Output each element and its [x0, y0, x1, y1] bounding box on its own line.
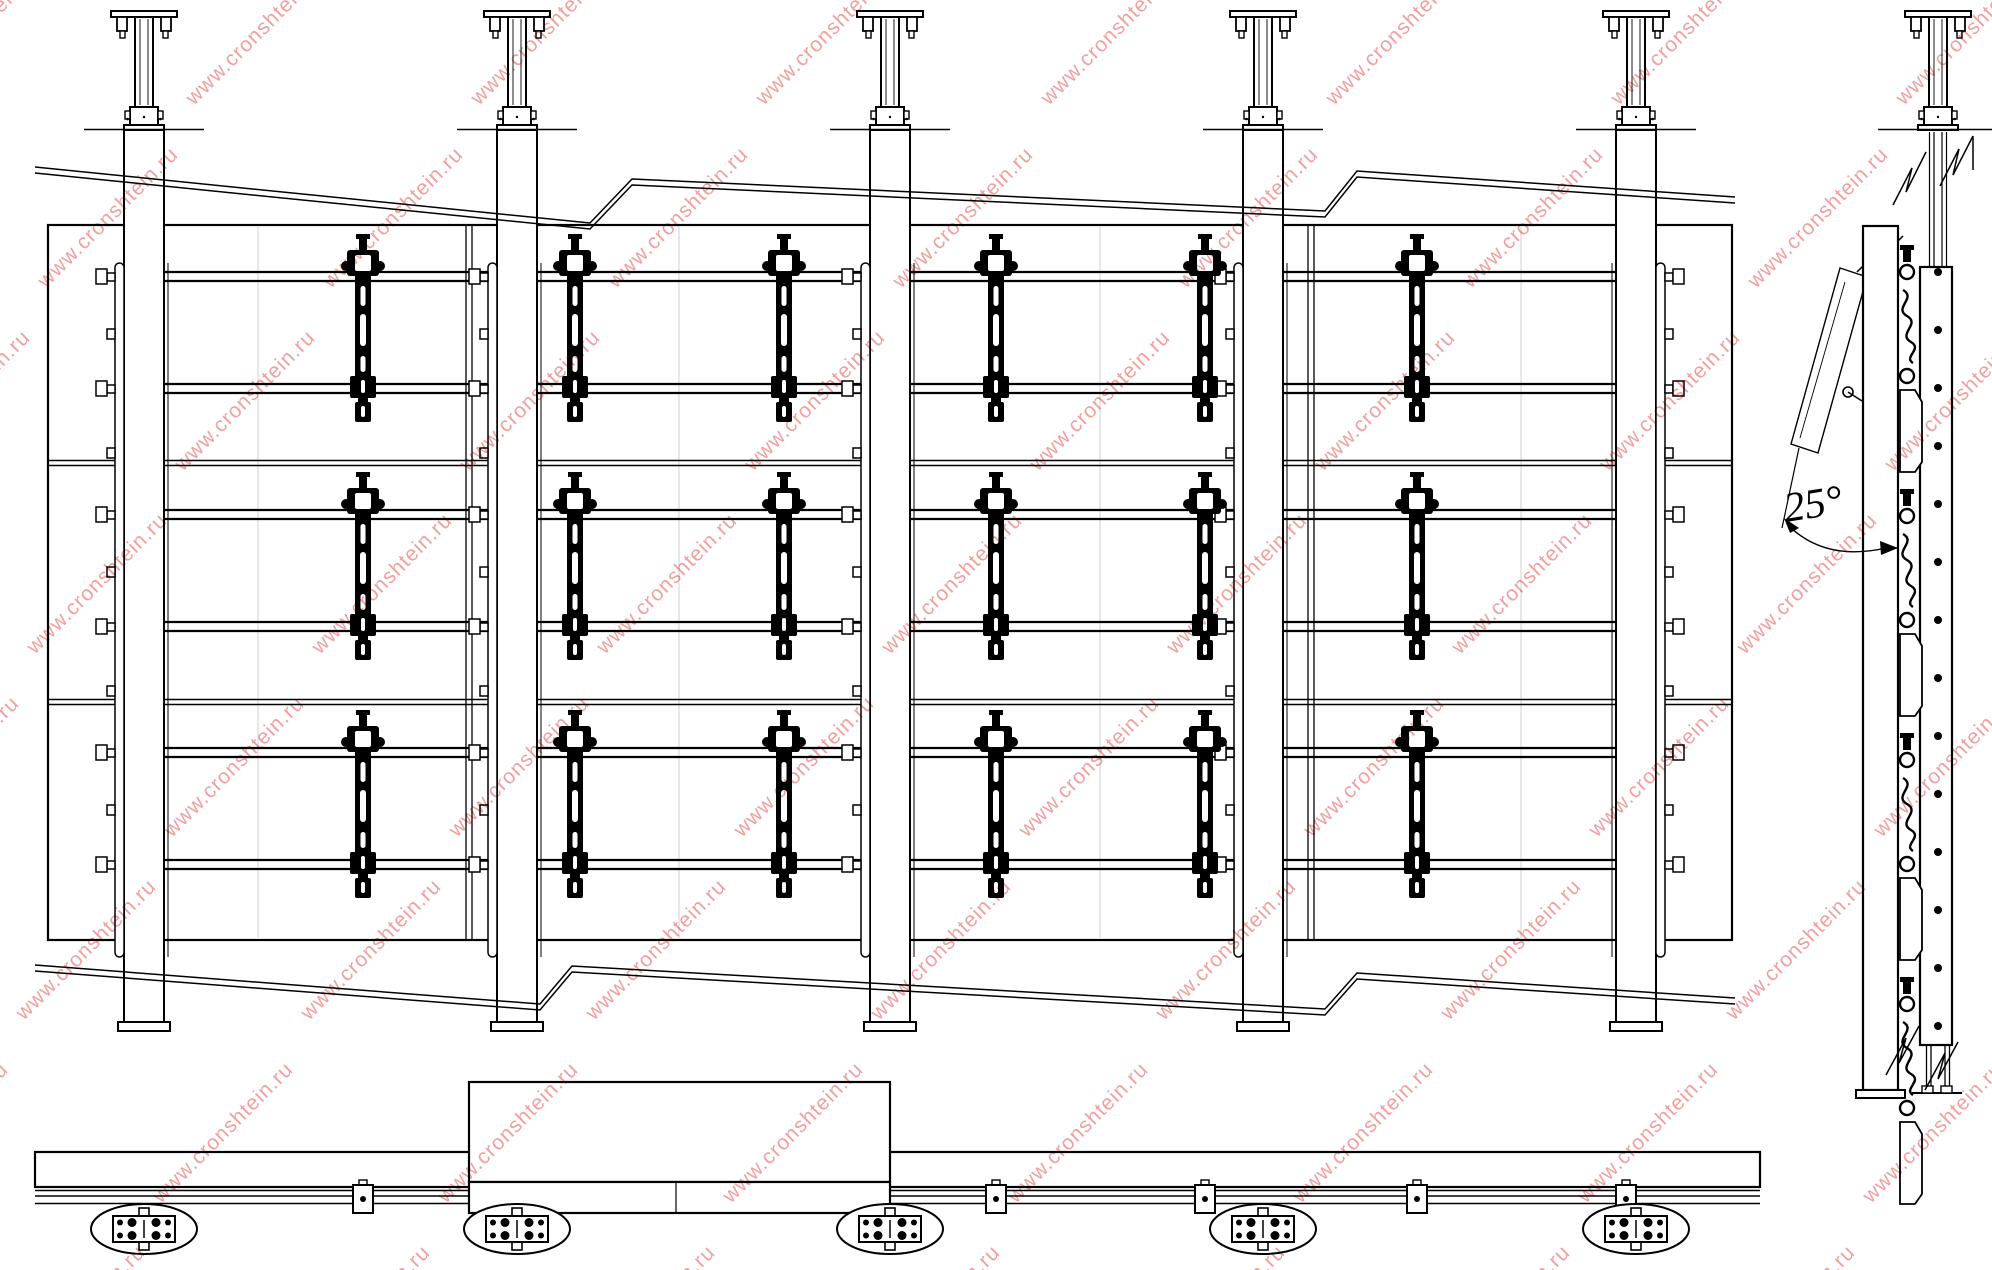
ceiling-plate-hook [161, 17, 171, 31]
collar-bolt-dot [1278, 118, 1281, 121]
stub-bolt-head [842, 269, 853, 284]
slot [573, 594, 578, 610]
hook-ring [1900, 369, 1914, 383]
stub-bolt-head [1673, 745, 1684, 760]
stub-bolt-small [853, 329, 861, 339]
slot [573, 406, 577, 417]
support-column [870, 129, 910, 1022]
bracket-bolt-cap [568, 234, 582, 239]
ceiling-pole-assembly [1203, 11, 1323, 130]
stub-bolt-small [480, 805, 488, 815]
pole-tube [508, 17, 526, 107]
slot [1203, 644, 1207, 655]
stub-bolt-shaft [853, 749, 861, 757]
hook-ring [1900, 753, 1914, 767]
cad-page: 25° www.cronshtein.ruwww.cronshtein.ruww… [0, 0, 1992, 1270]
bolt-hole-small [863, 1233, 869, 1239]
bolt-hole [1620, 1218, 1629, 1227]
slot [782, 524, 787, 544]
collar-bolt-dot [159, 118, 162, 121]
stub-bolt-small [107, 567, 115, 577]
hook-spring-clip [1902, 778, 1915, 851]
bracket-bolt-stem [992, 477, 1000, 489]
stub-bolt-shaft [1226, 749, 1234, 757]
stub-bolt-small [107, 686, 115, 696]
stub-bolt-shaft [107, 623, 115, 631]
hook-bolt-stem [1903, 982, 1911, 994]
ceiling-plate-hook-tip [866, 31, 871, 38]
bracket-bolt-cap [1410, 472, 1424, 477]
ceiling-plate-hook [534, 17, 544, 31]
plate-tab [1258, 1208, 1268, 1216]
side-foot [1922, 1086, 1933, 1093]
bolt-hole [128, 1231, 137, 1240]
side-hook-unit [1900, 245, 1922, 472]
clamp-bolt-dot [1623, 1196, 1629, 1202]
collar-bolt-dot [126, 118, 129, 121]
bracket-bolt-stem [1413, 715, 1421, 727]
slot [1415, 380, 1419, 393]
ceiling-base-plate [91, 1204, 197, 1254]
ceiling-plate-hook-tip [163, 31, 168, 38]
stub-bolt-shaft [1226, 511, 1234, 519]
bolt-hole [1644, 1218, 1653, 1227]
stub-bolt-shaft [1226, 273, 1234, 281]
plate-tab [1258, 1242, 1268, 1250]
panel-hole-dot [1934, 674, 1942, 682]
stub-bolt-head [842, 507, 853, 522]
hook-ring [1900, 613, 1914, 627]
collar-bolt-dot [1618, 118, 1621, 121]
panel-hole-dot [1934, 732, 1942, 740]
bolt-hole-small [538, 1233, 544, 1239]
slot [361, 380, 365, 393]
stub-bolt-small [480, 567, 488, 577]
front-view [35, 11, 1735, 1031]
slot [776, 493, 792, 509]
stub-bolt-head [96, 269, 107, 284]
hook-ring [1900, 509, 1914, 523]
slot [1415, 762, 1420, 782]
collar-bolt-dot [1920, 118, 1923, 121]
stub-bolt-small [1665, 567, 1673, 577]
stub-bolt-small [1226, 329, 1234, 339]
collar-bolt-dot [1953, 118, 1956, 121]
stub-bolt-shaft [1665, 385, 1673, 393]
bolt-hole [874, 1218, 883, 1227]
bolt-hole-small [1236, 1220, 1242, 1226]
slot [994, 856, 998, 869]
bracket-bolt-cap [1410, 710, 1424, 715]
hook-plate [1900, 390, 1922, 472]
clamp-bolt-dot [360, 1196, 366, 1202]
bolt-hole [128, 1218, 137, 1227]
slot [1415, 832, 1420, 848]
ceiling-plate-hook-tip [1957, 31, 1962, 38]
slot [572, 552, 578, 584]
bolt-hole [898, 1218, 907, 1227]
ceiling-plate-hook-tip [1282, 31, 1287, 38]
slot [573, 524, 578, 544]
vertical-strip [1234, 263, 1243, 957]
clamp-bolt-dot [1202, 1196, 1208, 1202]
slot [573, 882, 577, 893]
pole-tube [1929, 17, 1947, 107]
plate-tab [885, 1242, 895, 1250]
hook-spring-clip [1902, 534, 1915, 607]
bolt-hole-small [1657, 1220, 1663, 1226]
slot [361, 356, 366, 372]
stub-bolt-small [1665, 448, 1673, 458]
bolt-hole [1620, 1231, 1629, 1240]
panel-hole-dot [1934, 326, 1942, 334]
ceiling-plate-hook [1653, 17, 1663, 31]
break-symbol [1925, 1042, 1958, 1090]
slot [1409, 731, 1425, 747]
stub-bolt-shaft [853, 273, 861, 281]
stub-bolt-head [842, 619, 853, 634]
vertical-strip [488, 263, 497, 957]
stub-bolt-shaft [1665, 861, 1673, 869]
slot [567, 493, 583, 509]
clamp-bolt-dot [993, 1196, 999, 1202]
bolt-hole [1271, 1231, 1280, 1240]
hook-plate [1900, 634, 1922, 716]
slot [1197, 731, 1213, 747]
slot [782, 406, 786, 417]
slot [782, 644, 786, 655]
bolt-hole-small [911, 1220, 917, 1226]
hook-bolt-cap [1900, 489, 1914, 494]
slot [994, 594, 999, 610]
hook-spring-clip [1902, 290, 1915, 363]
panel-hole-dot [1934, 1022, 1942, 1030]
side-column [1863, 226, 1898, 1090]
slot [994, 524, 999, 544]
collar-bolt-dot [532, 118, 535, 121]
stub-bolt-small [480, 329, 488, 339]
hook-ring [1900, 1101, 1914, 1115]
stub-bolt-shaft [853, 623, 861, 631]
slot [573, 832, 578, 848]
bracket-bolt-stem [1201, 239, 1209, 251]
plate-tab [512, 1242, 522, 1250]
bolt-hole-small [911, 1233, 917, 1239]
plate-tab [512, 1208, 522, 1216]
ceiling-plate-hook [907, 17, 917, 31]
hook-bolt-stem [1903, 250, 1911, 262]
clamp-bolt-dot [1414, 1196, 1420, 1202]
side-display-panel [1920, 267, 1952, 1045]
stub-bolt-shaft [853, 511, 861, 519]
slot [361, 286, 366, 306]
slot [361, 594, 366, 610]
stub-bolt-head [469, 857, 480, 872]
bracket-bolt-cap [777, 472, 791, 477]
ceiling-plate-hook [1609, 17, 1619, 31]
slot [1415, 644, 1419, 655]
stub-bolt-shaft [1665, 511, 1673, 519]
slot [994, 644, 998, 655]
stub-bolt-shaft [107, 749, 115, 757]
column-foot [864, 1022, 916, 1031]
plate-tab [1631, 1208, 1641, 1216]
ceiling-plate-hook-tip [909, 31, 914, 38]
bolt-hole [1644, 1231, 1653, 1240]
pole-dot [516, 116, 518, 118]
stub-bolt-head [96, 507, 107, 522]
bolt-hole-small [1609, 1233, 1615, 1239]
stub-bolt-head [469, 381, 480, 396]
stub-bolt-small [853, 448, 861, 458]
bolt-hole [152, 1218, 161, 1227]
slot [1414, 790, 1420, 822]
stub-bolt-shaft [480, 385, 488, 393]
bolt-hole [1247, 1231, 1256, 1240]
vertical-strip [1656, 263, 1665, 957]
stub-bolt-head [96, 745, 107, 760]
panel-hole-dot [1934, 268, 1942, 276]
bolt-hole-small [1609, 1220, 1615, 1226]
assembly-drawing: 25° [0, 0, 1992, 1270]
slot [1203, 286, 1208, 306]
slot [361, 644, 365, 655]
hook-ring [1900, 857, 1914, 871]
slot [572, 314, 578, 346]
bolt-hole [501, 1231, 510, 1240]
stub-bolt-small [1665, 329, 1673, 339]
ceiling-base-plate [1210, 1204, 1316, 1254]
stub-bolt-shaft [1226, 623, 1234, 631]
ceiling-base-plate [837, 1204, 943, 1254]
stub-bolt-small [107, 805, 115, 815]
panel-hole-dot [1934, 790, 1942, 798]
ceiling-plate-hook [1911, 17, 1921, 31]
slot [994, 618, 998, 631]
bracket-bolt-cap [989, 472, 1003, 477]
ceiling-plate-hook [1280, 17, 1290, 31]
hook-ring [1900, 265, 1914, 279]
collar-bolt-dot [499, 118, 502, 121]
bolt-hole [874, 1231, 883, 1240]
slot [1203, 594, 1208, 610]
bracket-bolt-cap [356, 472, 370, 477]
slot [1415, 856, 1419, 869]
slot [782, 380, 786, 393]
slot [572, 790, 578, 822]
stub-bolt-head [469, 269, 480, 284]
slot [988, 731, 1004, 747]
pole-tube [881, 17, 899, 107]
stub-bolt-head [96, 619, 107, 634]
stub-bolt-small [1226, 805, 1234, 815]
ceiling-plate-hook-tip [1612, 31, 1617, 38]
stub-bolt-shaft [480, 273, 488, 281]
stub-bolt-small [1226, 686, 1234, 696]
bracket-bolt-stem [359, 239, 367, 251]
stub-bolt-head [842, 745, 853, 760]
hook-ring [1900, 997, 1914, 1011]
slot [1203, 406, 1207, 417]
bracket-bolt-stem [992, 239, 1000, 251]
pole-tube [1627, 17, 1645, 107]
stub-bolt-shaft [480, 623, 488, 631]
stub-bolt-small [1665, 805, 1673, 815]
ceiling-base-plate [1583, 1204, 1689, 1254]
ceiling-pole-assembly [1576, 11, 1696, 130]
column-foot [118, 1022, 170, 1031]
bracket-bolt-cap [568, 472, 582, 477]
plan-display-rect [469, 1082, 890, 1182]
bracket-bolt-cap [568, 710, 582, 715]
bolt-hole [898, 1231, 907, 1240]
plate-tab [885, 1208, 895, 1216]
plan-rail-clamp [1407, 1180, 1427, 1213]
slot [567, 731, 583, 747]
slot [573, 380, 577, 393]
slot [1202, 552, 1208, 584]
tilt-angle-label: 25° [1780, 477, 1845, 532]
slot [1415, 406, 1419, 417]
bolt-hole-small [165, 1220, 171, 1226]
tilted-panel-ghost [1791, 268, 1867, 453]
pole-tube [1254, 17, 1272, 107]
bracket-bolt-stem [780, 239, 788, 251]
bracket-bolt-stem [1413, 477, 1421, 489]
stub-bolt-shaft [107, 511, 115, 519]
ceiling-plate-hook [1236, 17, 1246, 31]
collar-bolt-dot [1651, 118, 1654, 121]
panel-hole-dot [1934, 558, 1942, 566]
bracket-bolt-stem [359, 477, 367, 489]
slot [360, 552, 366, 584]
bolt-hole [501, 1218, 510, 1227]
side-view [1782, 11, 1992, 1204]
slot [1409, 255, 1425, 271]
bracket-bolt-cap [777, 710, 791, 715]
bracket-bolt-cap [356, 710, 370, 715]
hook-bolt-cap [1900, 977, 1914, 982]
collar-bolt-dot [1245, 118, 1248, 121]
slot [1415, 618, 1419, 631]
slot [994, 406, 998, 417]
support-column [1616, 129, 1656, 1022]
bolt-hole-small [538, 1220, 544, 1226]
slot [782, 832, 787, 848]
ceiling-pole-assembly [457, 11, 577, 130]
ceiling-plate-hook [117, 17, 127, 31]
slot [1203, 856, 1207, 869]
bolt-hole [1247, 1218, 1256, 1227]
bracket-bolt-stem [571, 477, 579, 489]
bracket-bolt-stem [780, 477, 788, 489]
bracket-bolt-cap [1198, 234, 1212, 239]
bolt-hole-small [490, 1220, 496, 1226]
hook-bolt-cap [1900, 245, 1914, 250]
vertical-strip [861, 263, 870, 957]
slot [1415, 594, 1420, 610]
slot [782, 856, 786, 869]
ceiling-plate-hook-tip [1655, 31, 1660, 38]
stub-bolt-shaft [1226, 385, 1234, 393]
slot [361, 856, 365, 869]
slot [361, 762, 366, 782]
support-column [124, 129, 164, 1022]
pole-dot [1635, 116, 1637, 118]
slot [1197, 255, 1213, 271]
stub-bolt-shaft [853, 861, 861, 869]
slot [361, 882, 365, 893]
panel-hole-dot [1934, 442, 1942, 450]
slot [355, 731, 371, 747]
panel-hole-dot [1934, 500, 1942, 508]
bolt-hole [1271, 1218, 1280, 1227]
slot [1415, 286, 1420, 306]
bracket-bolt-stem [1201, 715, 1209, 727]
slot [567, 255, 583, 271]
side-hook-unit [1900, 489, 1922, 716]
slot [355, 255, 371, 271]
stub-bolt-shaft [480, 861, 488, 869]
collar-bolt-dot [905, 118, 908, 121]
bolt-hole-small [490, 1233, 496, 1239]
ceiling-base-plate [464, 1204, 570, 1254]
ceiling-pole-assembly [84, 11, 204, 130]
stub-bolt-small [107, 448, 115, 458]
slot [360, 790, 366, 822]
slot [355, 493, 371, 509]
plan-rail-clamp [986, 1180, 1006, 1213]
panel-hole-dot [1934, 384, 1942, 392]
stub-bolt-shaft [107, 273, 115, 281]
stub-bolt-head [842, 381, 853, 396]
slot [1415, 356, 1420, 372]
bolt-hole-small [1657, 1233, 1663, 1239]
slot [573, 356, 578, 372]
bolt-hole-small [165, 1233, 171, 1239]
slot [776, 255, 792, 271]
plan-rail-clamp [1195, 1180, 1215, 1213]
bracket-bolt-cap [1198, 710, 1212, 715]
slot [573, 762, 578, 782]
bracket-bolt-stem [1413, 239, 1421, 251]
ceiling-plate-hook-tip [493, 31, 498, 38]
ceiling-plate-hook-tip [536, 31, 541, 38]
stub-bolt-shaft [480, 511, 488, 519]
vertical-strip [115, 263, 124, 957]
support-column [1243, 129, 1283, 1022]
ceiling-plate-hook [863, 17, 873, 31]
slot [1415, 882, 1419, 893]
slot [1197, 493, 1213, 509]
slot [781, 552, 787, 584]
stub-bolt-small [1226, 567, 1234, 577]
bracket-bolt-cap [356, 234, 370, 239]
slot [782, 356, 787, 372]
stub-bolt-small [480, 686, 488, 696]
stub-bolt-shaft [1665, 749, 1673, 757]
plate-tab [139, 1208, 149, 1216]
slot [994, 356, 999, 372]
stub-bolt-shaft [1665, 623, 1673, 631]
plate-tab [1631, 1242, 1641, 1250]
hook-spring-clip [1902, 1022, 1915, 1095]
pole-dot [1937, 116, 1939, 118]
bracket-bolt-stem [992, 715, 1000, 727]
hook-plate [1900, 1122, 1922, 1204]
slot [360, 314, 366, 346]
stub-bolt-head [469, 619, 480, 634]
